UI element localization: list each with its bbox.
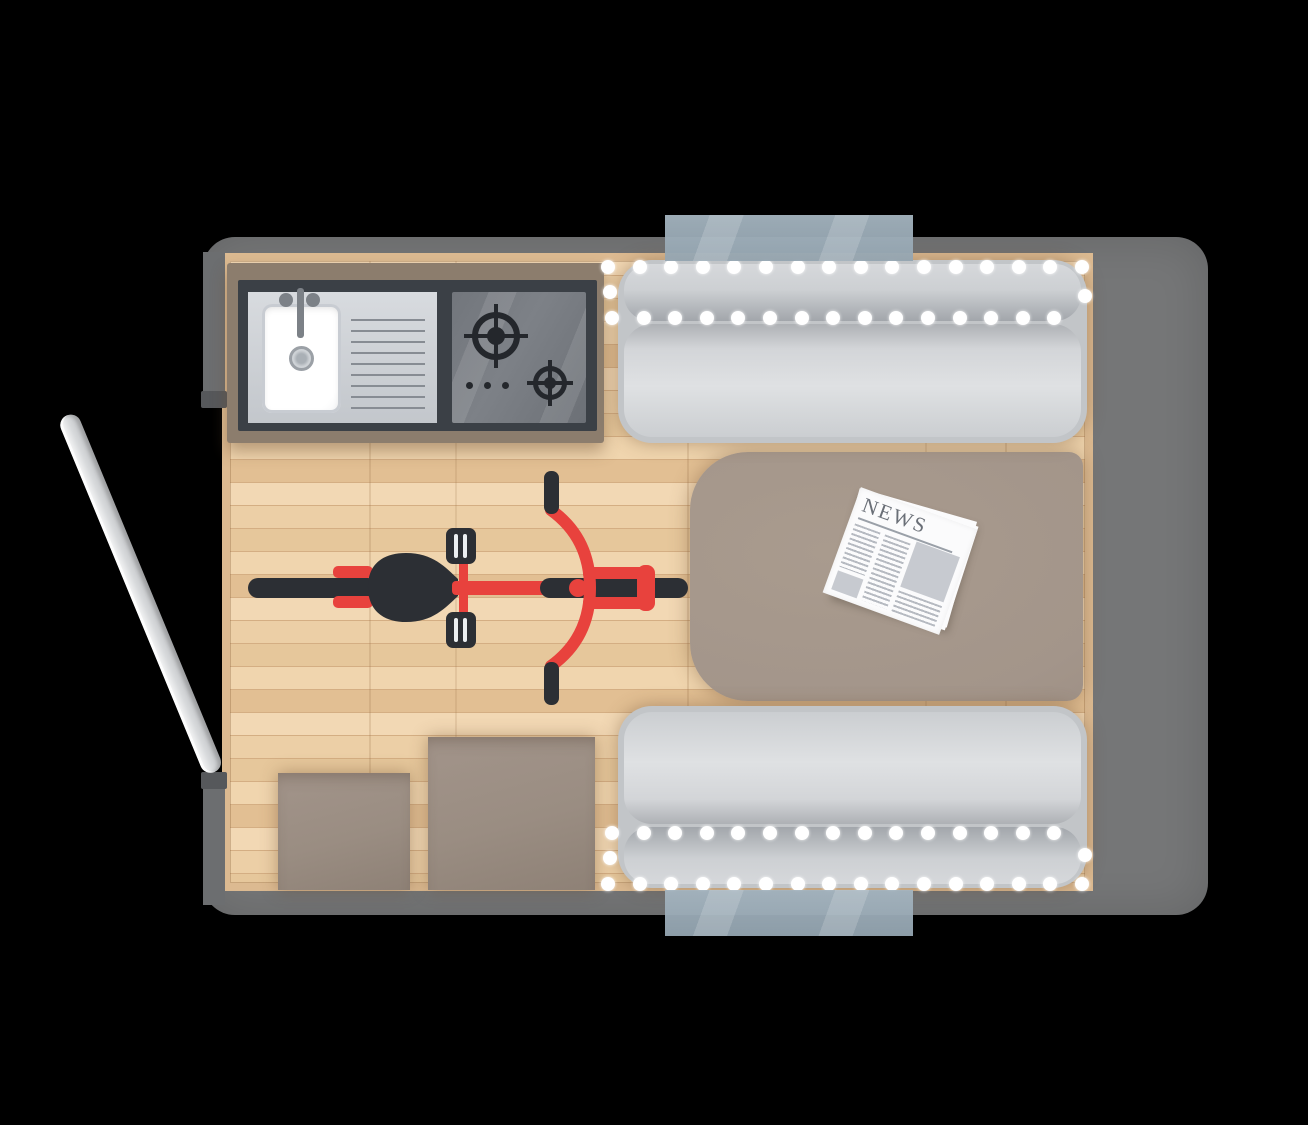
stool-large bbox=[428, 737, 595, 890]
door-jamb-top bbox=[201, 391, 227, 408]
bed-top-pillow bbox=[624, 264, 1081, 321]
cooktop-knob bbox=[466, 382, 473, 389]
sink-drain bbox=[289, 346, 314, 371]
bed-top-mattress bbox=[624, 324, 1081, 437]
door-jamb-bottom bbox=[201, 772, 227, 789]
burner-large bbox=[464, 304, 528, 368]
bike-rear-wheel bbox=[248, 578, 378, 598]
bed-bottom-pillow bbox=[624, 827, 1081, 884]
bike-seat bbox=[368, 553, 458, 622]
bed-bottom bbox=[618, 706, 1087, 888]
bicycle bbox=[230, 460, 730, 710]
bed-bottom-mattress bbox=[624, 712, 1081, 824]
bike-seat-clamp bbox=[333, 596, 373, 608]
faucet-handle-left bbox=[279, 293, 293, 307]
faucet-handle-right bbox=[306, 293, 320, 307]
bike-seat-clamp bbox=[333, 566, 373, 578]
sink-tray bbox=[248, 292, 437, 423]
stool-small bbox=[278, 773, 410, 890]
left-wall-bottom-segment bbox=[203, 789, 225, 905]
bike-fork-cap bbox=[637, 565, 655, 611]
faucet bbox=[297, 288, 304, 338]
burner-small bbox=[527, 360, 573, 406]
newspaper-photo-small bbox=[831, 570, 863, 598]
bike-front-wheel bbox=[540, 578, 688, 598]
cooktop-knob bbox=[502, 382, 509, 389]
bike-steer-hub bbox=[569, 579, 587, 597]
kitchen-counter bbox=[238, 280, 597, 431]
cooktop-knob bbox=[484, 382, 491, 389]
burner-center bbox=[487, 327, 505, 345]
window-top bbox=[665, 215, 913, 261]
cooktop bbox=[452, 292, 586, 423]
bed-top bbox=[618, 260, 1087, 443]
bike-grip-top bbox=[544, 471, 559, 514]
bike-pedal-bottom bbox=[446, 612, 476, 648]
bike-grip-bottom bbox=[544, 662, 559, 705]
scene-canvas: NEWS bbox=[0, 0, 1308, 1125]
burner-center bbox=[544, 377, 556, 389]
kitchen-unit bbox=[227, 263, 604, 443]
bike-pedal-top bbox=[446, 528, 476, 564]
drainboard bbox=[351, 319, 425, 409]
left-wall-top-segment bbox=[203, 252, 225, 408]
window-bottom bbox=[665, 890, 913, 936]
